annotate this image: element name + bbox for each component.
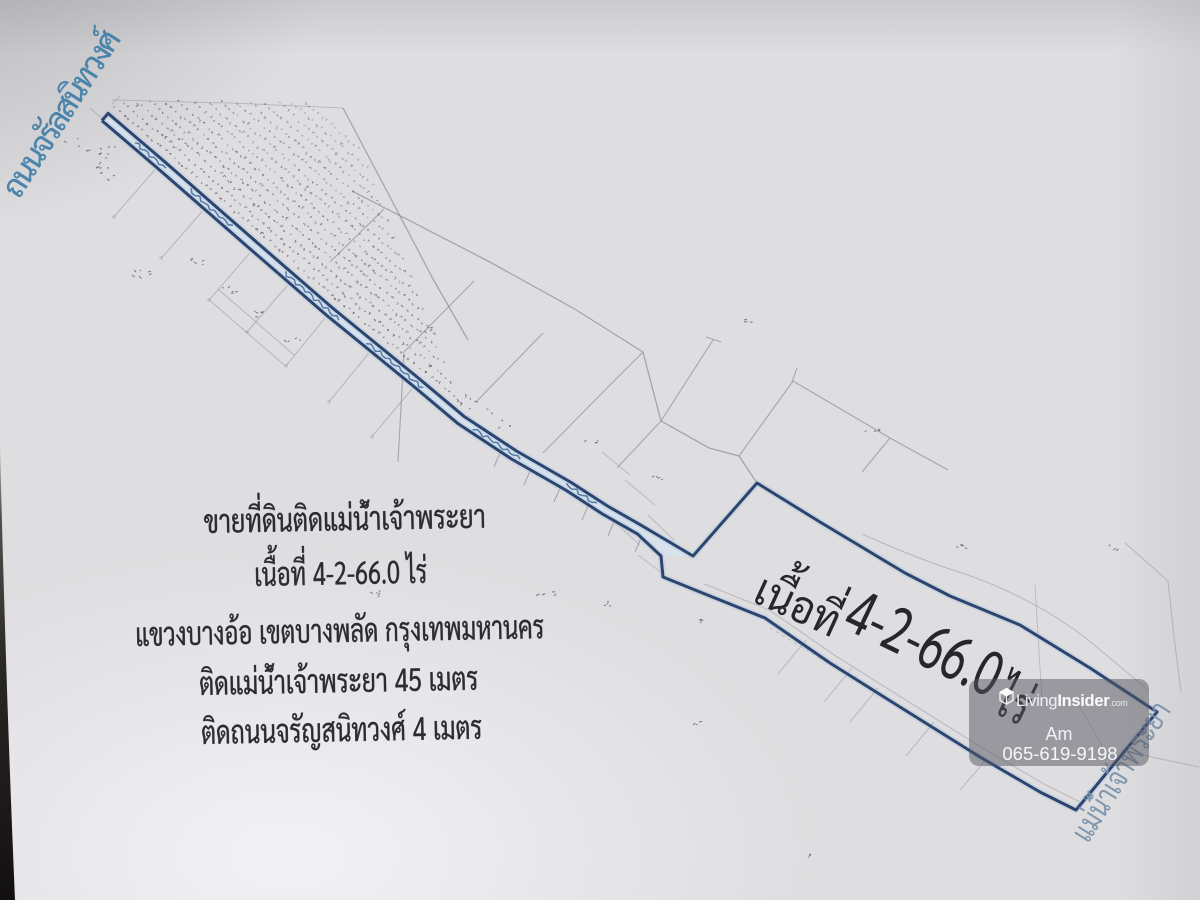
svg-text:065-619-9198: 065-619-9198 [1002,743,1117,764]
svg-text:Am: Am [1046,724,1073,744]
